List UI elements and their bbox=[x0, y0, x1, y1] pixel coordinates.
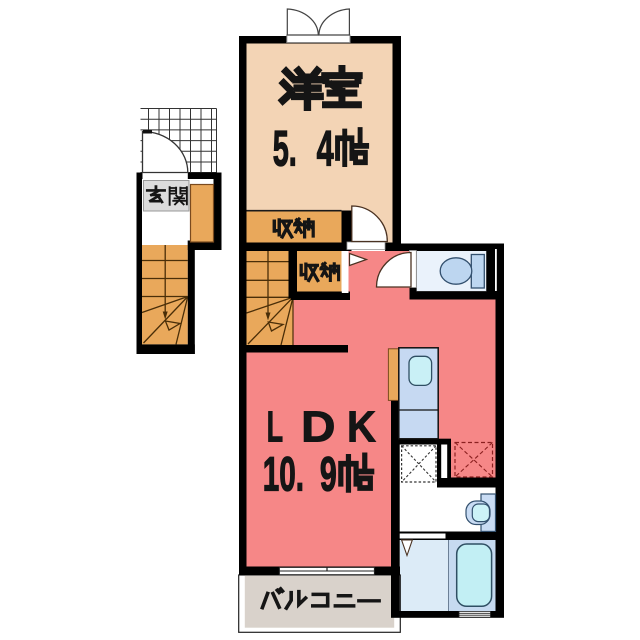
svg-text:L: L bbox=[267, 403, 284, 452]
svg-text:9: 9 bbox=[320, 448, 337, 501]
svg-text:4: 4 bbox=[317, 121, 334, 177]
svg-text:D: D bbox=[301, 403, 336, 452]
svg-text:10.: 10. bbox=[263, 448, 304, 501]
svg-text:5.: 5. bbox=[273, 121, 297, 177]
svg-text:K: K bbox=[347, 403, 376, 452]
